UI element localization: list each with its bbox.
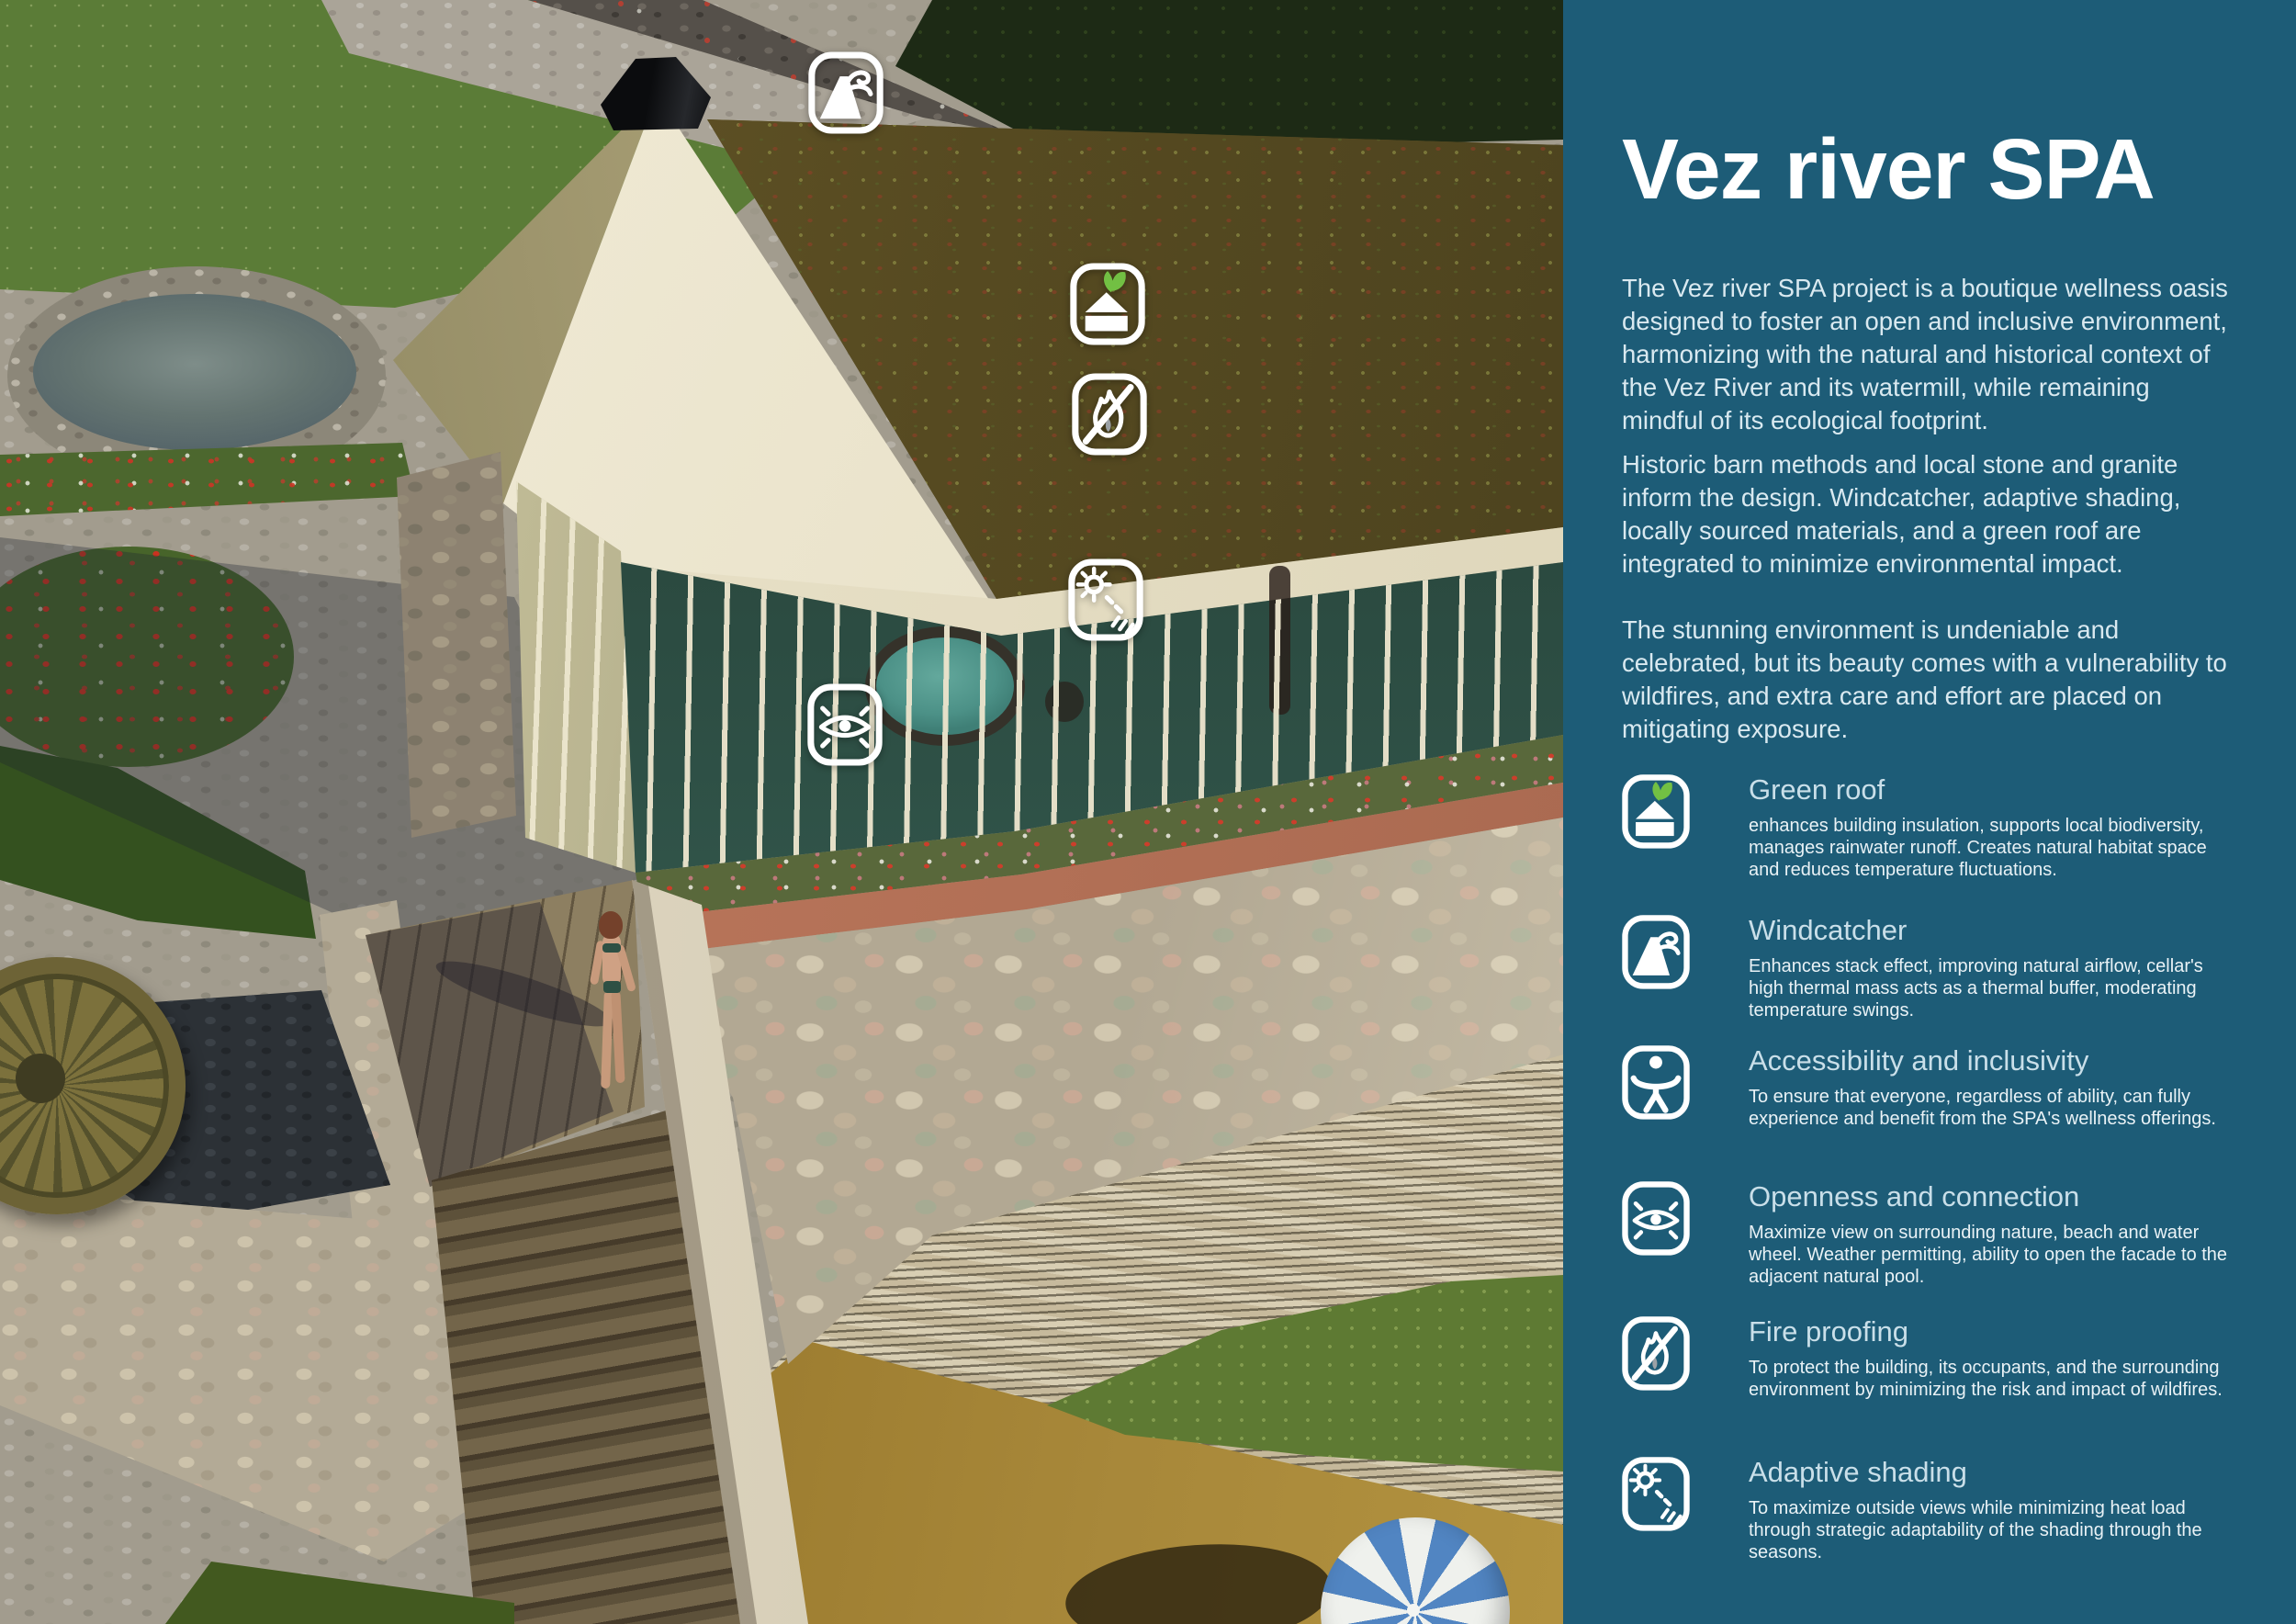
openness-eye-icon <box>807 683 883 766</box>
feature-green-roof: Green roof enhances building insulation,… <box>1622 774 2265 881</box>
feature-description: To ensure that everyone, regardless of a… <box>1749 1086 2235 1130</box>
architectural-rendering <box>0 0 1563 1624</box>
feature-description: To maximize outside views while minimizi… <box>1749 1497 2235 1563</box>
feature-accessibility: Accessibility and inclusivity To ensure … <box>1622 1045 2265 1130</box>
pond-water <box>33 294 356 450</box>
windcatcher-icon <box>1622 915 1690 989</box>
water-wheel-hub <box>16 1054 65 1103</box>
green-roof-icon <box>1070 263 1145 345</box>
feature-description: To protect the building, its occupants, … <box>1749 1357 2235 1401</box>
feature-description: Maximize view on surrounding nature, bea… <box>1749 1222 2235 1288</box>
feature-adaptive-shading: Adaptive shading To maximize outside vie… <box>1622 1457 2265 1563</box>
design-paragraph: Historic barn methods and local stone an… <box>1622 448 2232 581</box>
green-roof-icon <box>1622 774 1690 849</box>
openness-eye-icon <box>1622 1181 1690 1256</box>
woman-figure <box>588 911 654 1119</box>
feature-openness: Openness and connection Maximize view on… <box>1622 1181 2265 1288</box>
feature-title: Windcatcher <box>1749 915 2235 947</box>
feature-fire-proofing: Fire proofing To protect the building, i… <box>1622 1316 2265 1401</box>
presentation-board: Vez river SPA The Vez river SPA project … <box>0 0 2296 1624</box>
feature-title: Accessibility and inclusivity <box>1749 1045 2235 1077</box>
feature-title: Openness and connection <box>1749 1181 2235 1213</box>
accessibility-icon <box>1622 1045 1690 1120</box>
feature-windcatcher: Windcatcher Enhances stack effect, impro… <box>1622 915 2265 1021</box>
adaptive-shading-icon <box>1622 1457 1690 1531</box>
no-fire-icon <box>1622 1316 1690 1391</box>
windcatcher-icon <box>808 51 884 134</box>
feature-description: enhances building insulation, supports l… <box>1749 815 2235 881</box>
feature-title: Green roof <box>1749 774 2235 806</box>
umbrella-tip <box>1407 1604 1420 1617</box>
adaptive-shading-icon <box>1068 558 1143 641</box>
info-sidebar: Vez river SPA The Vez river SPA project … <box>1563 0 2296 1624</box>
page-title: Vez river SPA <box>1622 127 2155 212</box>
feature-title: Adaptive shading <box>1749 1457 2235 1489</box>
no-fire-icon <box>1072 373 1147 456</box>
intro-paragraph: The Vez river SPA project is a boutique … <box>1622 272 2232 437</box>
feature-description: Enhances stack effect, improving natural… <box>1749 955 2235 1021</box>
feature-title: Fire proofing <box>1749 1316 2235 1348</box>
wildfire-paragraph: The stunning environment is undeniable a… <box>1622 614 2232 746</box>
